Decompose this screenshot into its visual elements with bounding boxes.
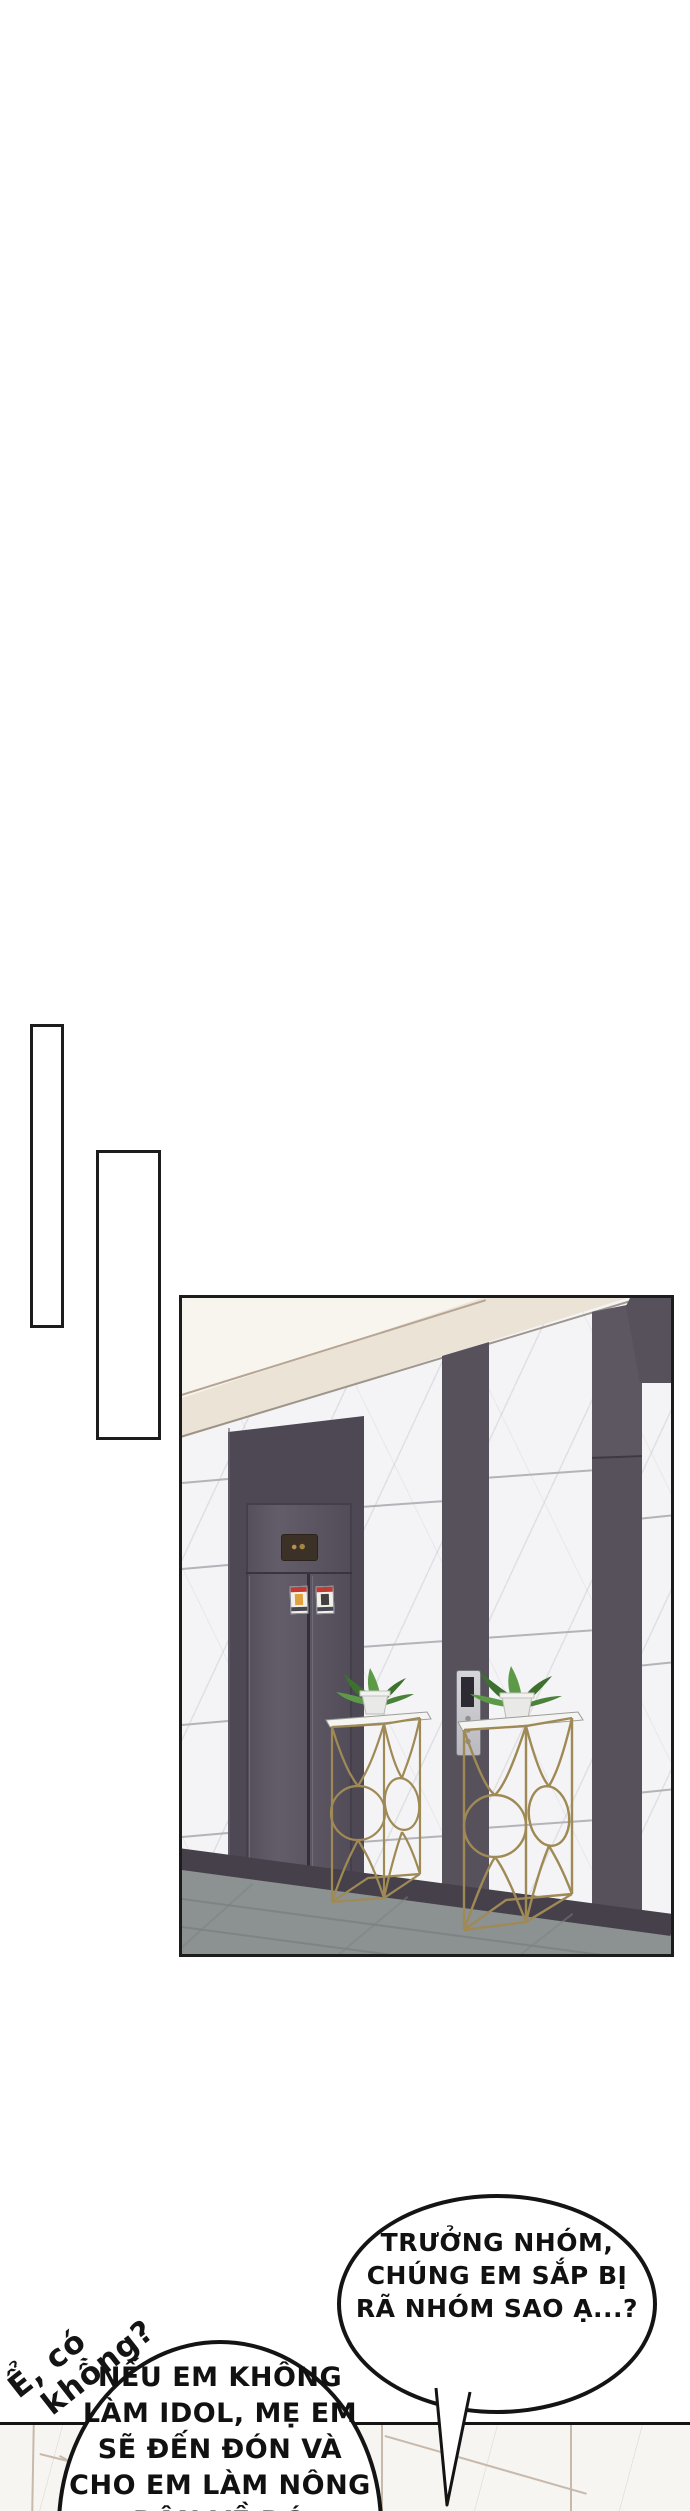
door-highlight xyxy=(249,1576,250,1872)
marble-seam xyxy=(182,1832,228,1838)
elevator-floor-indicator xyxy=(281,1534,318,1561)
elevator-lobby-panel xyxy=(179,1295,674,1957)
marble-seam xyxy=(364,1500,442,1507)
bubble-line: DÂN VỀ ĐÓ xyxy=(61,2504,379,2511)
door-highlight xyxy=(312,1576,313,1872)
stand-frame xyxy=(331,1718,422,1902)
bubble-line: CHÚNG EM SẮP BỊ xyxy=(341,2259,653,2292)
speech-bubble-tail xyxy=(425,2378,485,2511)
comic-page: TRƯỞNG NHÓM, CHÚNG EM SẮP BỊ RÃ NHÓM SAO… xyxy=(0,0,690,2511)
alcove-edge-highlight xyxy=(228,1428,230,1884)
stand-frame xyxy=(464,1718,573,1930)
empty-panel-frame-2 xyxy=(96,1150,161,1440)
speech-bubble-right: TRƯỞNG NHÓM, CHÚNG EM SẮP BỊ RÃ NHÓM SAO… xyxy=(337,2194,657,2414)
potted-plant xyxy=(336,1668,414,1714)
marble-seam xyxy=(182,1720,228,1726)
bubble-line: TRƯỞNG NHÓM, xyxy=(341,2226,653,2259)
empty-panel-frame-1 xyxy=(30,1024,64,1328)
marble-seam xyxy=(489,1469,592,1478)
elevator-transom-seam xyxy=(246,1572,352,1574)
marble-seam xyxy=(642,1788,671,1793)
marble-seam xyxy=(489,1629,592,1638)
elevator-warning-sticker-left xyxy=(290,1586,309,1615)
bubble-line: RÃ NHÓM SAO Ạ...? xyxy=(341,2292,653,2325)
marble-seam xyxy=(364,1640,442,1647)
elevator-warning-sticker-right xyxy=(316,1586,335,1615)
bubble-line: CHO EM LÀM NÔNG xyxy=(61,2468,379,2504)
marble-seam xyxy=(31,2425,34,2511)
marble-seam xyxy=(182,1478,228,1484)
marble-seam xyxy=(642,1514,671,1519)
plant-stand-left xyxy=(324,1666,434,1918)
marble-vein xyxy=(385,2435,587,2494)
plant-stand-right xyxy=(454,1664,584,1948)
marble-seam xyxy=(182,1564,228,1570)
elevator-door-gap xyxy=(307,1574,310,1873)
marble-seam xyxy=(642,1661,671,1666)
bubble-line: LÀM IDOL, MẸ EM xyxy=(61,2396,379,2432)
marble-seam xyxy=(570,2425,572,2511)
potted-plant xyxy=(470,1666,562,1718)
bubble-line: SẼ ĐẾN ĐÓN VÀ xyxy=(61,2432,379,2468)
